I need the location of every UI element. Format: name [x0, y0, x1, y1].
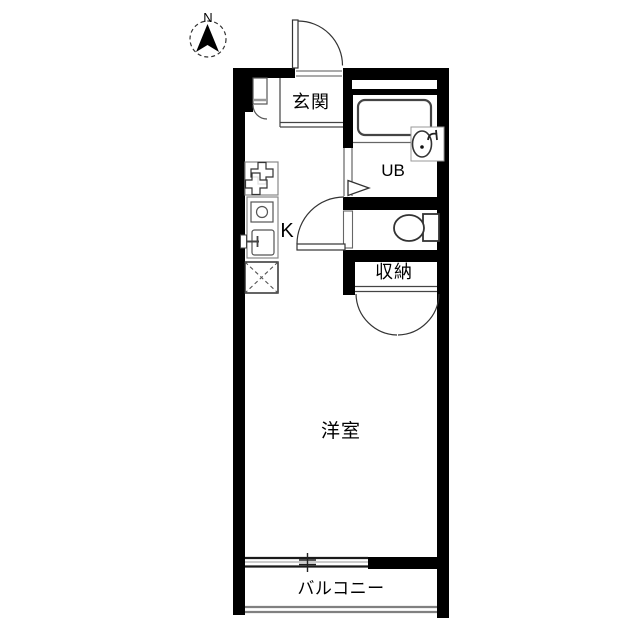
room-label-kitchen: K — [280, 220, 294, 242]
burner-icon — [257, 207, 268, 218]
hall-door — [297, 197, 345, 250]
balcony-railing-icon — [240, 607, 445, 612]
north-arrow-icon — [196, 24, 219, 52]
door-swing-icon — [298, 21, 343, 66]
floor-plan-page: N 玄関 UB K 収納 洋室 バルコニー — [0, 0, 640, 640]
room-label-balcony: バルコニー — [297, 579, 384, 598]
door-leaf-icon — [293, 20, 299, 68]
entrance-door — [293, 20, 343, 68]
room-label-storage: 収納 — [375, 262, 413, 282]
wall-left-jog — [245, 68, 253, 112]
ub-window-slit — [352, 80, 437, 89]
wall-toilet-bottom — [343, 250, 449, 262]
room-label-western-room: 洋室 — [321, 420, 361, 442]
door-swing-icon — [253, 78, 267, 119]
sliding-window-icon — [245, 553, 368, 572]
compass-north-label: N — [203, 10, 212, 25]
door-leaf-icon — [344, 211, 353, 248]
wall-ub-left — [343, 95, 353, 148]
door-leaf-icon — [297, 244, 345, 250]
washbasin-icon — [411, 127, 444, 161]
unit-bath-fixtures — [344, 100, 444, 196]
entrance-opening — [296, 71, 342, 76]
kitchen-fixtures — [241, 162, 279, 293]
toilet-icon — [394, 214, 439, 241]
door-triangle-icon — [348, 181, 369, 196]
room-label-ub: UB — [381, 161, 405, 180]
wall-ub-bottom — [343, 197, 449, 210]
ub-door — [344, 148, 369, 196]
refrigerator-space-icon — [245, 262, 278, 293]
compass: N — [190, 10, 226, 57]
door-swing-icon — [297, 197, 344, 244]
toilet-room — [344, 211, 440, 248]
room-label-genkan: 玄関 — [292, 92, 330, 112]
wall-storage-left — [343, 262, 355, 295]
storage-closet — [355, 287, 439, 336]
floor-plan-drawing: N 玄関 UB K 収納 洋室 バルコニー — [0, 0, 640, 640]
wall-window-right — [368, 557, 437, 569]
double-door-swing-icon — [356, 294, 439, 335]
wall-left — [233, 68, 245, 615]
